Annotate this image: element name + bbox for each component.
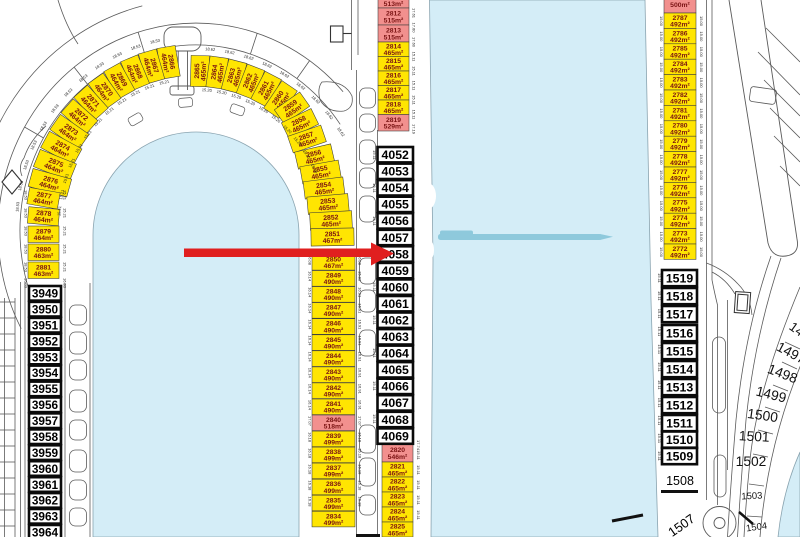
svg-text:3951: 3951 xyxy=(32,319,59,333)
svg-text:15.00: 15.00 xyxy=(659,47,664,58)
svg-text:2834499m²: 2834499m² xyxy=(324,513,344,527)
svg-text:4064: 4064 xyxy=(382,347,410,361)
svg-text:3956: 3956 xyxy=(32,398,59,412)
svg-text:15.00: 15.00 xyxy=(659,31,664,42)
svg-text:16.18: 16.18 xyxy=(308,432,313,443)
svg-text:2825465m²: 2825465m² xyxy=(388,524,408,537)
svg-text:16.18: 16.18 xyxy=(358,464,363,475)
svg-text:3961: 3961 xyxy=(32,478,59,492)
svg-text:2835499m²: 2835499m² xyxy=(324,497,344,511)
svg-text:2836499m²: 2836499m² xyxy=(324,481,344,495)
svg-text:15.00: 15.00 xyxy=(659,232,664,243)
svg-text:15.11: 15.11 xyxy=(412,110,417,120)
svg-text:4063: 4063 xyxy=(382,330,410,344)
svg-text:1512: 1512 xyxy=(666,398,694,412)
svg-text:15.00: 15.00 xyxy=(699,139,704,150)
svg-text:15.00: 15.00 xyxy=(659,170,664,181)
svg-text:2781492m²: 2781492m² xyxy=(670,107,690,121)
svg-text:500m²: 500m² xyxy=(670,2,690,9)
svg-text:17.19: 17.19 xyxy=(412,124,417,135)
svg-text:2841490m²: 2841490m² xyxy=(324,401,344,415)
svg-text:2773492m²: 2773492m² xyxy=(670,231,690,245)
svg-text:4060: 4060 xyxy=(382,280,410,294)
svg-text:1513: 1513 xyxy=(666,380,694,394)
svg-text:15.11: 15.11 xyxy=(412,95,417,105)
svg-text:16.14: 16.14 xyxy=(308,319,313,330)
svg-text:15.00: 15.00 xyxy=(659,139,664,150)
svg-text:2849490m²: 2849490m² xyxy=(324,273,344,287)
svg-text:15.21: 15.21 xyxy=(63,190,68,201)
svg-text:15.20: 15.20 xyxy=(202,87,213,93)
svg-text:15.00: 15.00 xyxy=(699,185,704,196)
svg-text:3957: 3957 xyxy=(32,414,59,428)
svg-text:2779492m²: 2779492m² xyxy=(670,138,690,152)
svg-text:15.00: 15.00 xyxy=(699,216,704,227)
svg-text:15.00: 15.00 xyxy=(699,232,704,243)
svg-text:1514: 1514 xyxy=(666,362,694,376)
svg-text:15.00: 15.00 xyxy=(699,62,704,73)
svg-text:15.00: 15.00 xyxy=(699,31,704,42)
svg-text:2774492m²: 2774492m² xyxy=(670,215,690,229)
svg-text:4054: 4054 xyxy=(382,181,410,195)
svg-text:3950: 3950 xyxy=(32,303,59,317)
svg-text:15.11: 15.11 xyxy=(372,414,377,424)
svg-text:16.14: 16.14 xyxy=(308,335,313,346)
svg-text:1501: 1501 xyxy=(739,428,770,445)
svg-text:1510: 1510 xyxy=(666,433,694,447)
svg-text:1509: 1509 xyxy=(666,449,694,463)
svg-text:2823465m²: 2823465m² xyxy=(388,494,408,508)
svg-text:15.00: 15.00 xyxy=(699,155,704,166)
svg-text:16.14: 16.14 xyxy=(308,303,313,314)
svg-text:2784492m²: 2784492m² xyxy=(670,61,690,75)
svg-text:4061: 4061 xyxy=(382,297,410,311)
svg-text:3954: 3954 xyxy=(32,366,59,380)
svg-text:15.11: 15.11 xyxy=(372,315,377,325)
svg-text:15.00: 15.00 xyxy=(659,108,664,119)
svg-text:15.00: 15.00 xyxy=(699,170,704,181)
svg-text:2776492m²: 2776492m² xyxy=(670,184,690,198)
svg-text:2785492m²: 2785492m² xyxy=(670,46,690,60)
svg-text:1515: 1515 xyxy=(666,344,694,358)
svg-text:15.11: 15.11 xyxy=(416,495,421,505)
svg-text:2820546m²: 2820546m² xyxy=(388,447,408,461)
svg-text:2824465m²: 2824465m² xyxy=(388,509,408,523)
svg-text:15.11: 15.11 xyxy=(372,216,377,226)
svg-text:1508: 1508 xyxy=(666,474,694,488)
svg-text:15.11: 15.11 xyxy=(657,451,662,461)
svg-text:18.53: 18.53 xyxy=(24,262,29,273)
svg-text:15.11: 15.11 xyxy=(412,81,417,91)
svg-text:16.18: 16.18 xyxy=(308,480,313,491)
svg-text:2879464m²: 2879464m² xyxy=(34,228,54,242)
svg-text:15.11: 15.11 xyxy=(657,433,662,443)
svg-text:2786492m²: 2786492m² xyxy=(670,30,690,44)
svg-text:2821465m²: 2821465m² xyxy=(388,464,408,478)
svg-text:15.11: 15.11 xyxy=(657,362,662,372)
svg-text:1516: 1516 xyxy=(666,326,694,340)
svg-text:18.62: 18.62 xyxy=(205,46,216,52)
svg-text:4067: 4067 xyxy=(382,396,410,410)
svg-text:2842490m²: 2842490m² xyxy=(324,385,344,399)
svg-text:16.14: 16.14 xyxy=(308,352,313,363)
svg-text:2850467m²: 2850467m² xyxy=(324,257,344,271)
svg-text:18.53: 18.53 xyxy=(24,190,29,201)
svg-text:16.18: 16.18 xyxy=(358,480,363,491)
svg-text:18.53: 18.53 xyxy=(24,244,29,255)
svg-text:2848490m²: 2848490m² xyxy=(324,289,344,303)
svg-text:2847490m²: 2847490m² xyxy=(324,305,344,319)
svg-text:2840518m²: 2840518m² xyxy=(324,417,344,431)
svg-text:1503: 1503 xyxy=(741,490,763,502)
svg-text:2838499m²: 2838499m² xyxy=(324,449,344,463)
svg-text:4056: 4056 xyxy=(382,214,410,228)
svg-text:3959: 3959 xyxy=(32,446,59,460)
svg-text:3958: 3958 xyxy=(32,430,59,444)
svg-text:3952: 3952 xyxy=(32,334,59,348)
svg-text:2818465m²: 2818465m² xyxy=(384,101,404,115)
svg-text:17.07: 17.07 xyxy=(308,416,313,427)
svg-text:4062: 4062 xyxy=(382,314,410,328)
svg-text:15.11: 15.11 xyxy=(416,480,421,490)
svg-text:15.21: 15.21 xyxy=(63,244,68,255)
svg-text:15.21: 15.21 xyxy=(63,208,68,219)
svg-text:2846490m²: 2846490m² xyxy=(324,321,344,335)
svg-text:2865465m²: 2865465m² xyxy=(194,60,208,81)
svg-text:15.11: 15.11 xyxy=(416,510,421,520)
svg-text:15.11: 15.11 xyxy=(372,282,377,292)
svg-text:16.91: 16.91 xyxy=(358,352,363,363)
svg-text:17.60: 17.60 xyxy=(412,37,417,48)
svg-text:2816465m²: 2816465m² xyxy=(384,72,404,86)
svg-text:1517: 1517 xyxy=(666,307,694,321)
svg-text:2843490m²: 2843490m² xyxy=(324,369,344,383)
svg-text:2822465m²: 2822465m² xyxy=(388,479,408,493)
svg-text:15.00: 15.00 xyxy=(699,108,704,119)
svg-text:3963: 3963 xyxy=(32,510,59,524)
svg-text:15.00: 15.00 xyxy=(699,93,704,104)
svg-text:16.91: 16.91 xyxy=(358,287,363,298)
svg-text:2844490m²: 2844490m² xyxy=(324,353,344,367)
svg-text:4057: 4057 xyxy=(382,231,410,245)
svg-text:16.91: 16.91 xyxy=(358,335,363,346)
svg-text:16.91: 16.91 xyxy=(358,303,363,314)
svg-text:15.11: 15.11 xyxy=(412,66,417,76)
svg-text:15.00: 15.00 xyxy=(659,62,664,73)
svg-text:2878464m²: 2878464m² xyxy=(33,210,54,225)
svg-text:16.91: 16.91 xyxy=(358,319,363,330)
svg-text:15.00: 15.00 xyxy=(699,247,704,258)
svg-text:15.00: 15.00 xyxy=(659,124,664,135)
svg-text:513m²: 513m² xyxy=(384,1,404,8)
svg-text:4052: 4052 xyxy=(382,148,410,162)
svg-text:16.18: 16.18 xyxy=(358,432,363,443)
svg-text:4068: 4068 xyxy=(382,413,410,427)
svg-text:15.11: 15.11 xyxy=(657,416,662,426)
svg-text:2783492m²: 2783492m² xyxy=(670,77,690,91)
svg-text:2837499m²: 2837499m² xyxy=(324,465,344,479)
svg-text:15.11: 15.11 xyxy=(657,398,662,408)
svg-text:15.00: 15.00 xyxy=(659,78,664,89)
svg-text:17.07: 17.07 xyxy=(358,416,363,427)
svg-text:18.53: 18.53 xyxy=(24,208,29,219)
svg-text:4059: 4059 xyxy=(382,264,410,278)
svg-text:16.14: 16.14 xyxy=(308,287,313,298)
svg-text:15.11: 15.11 xyxy=(416,450,421,460)
svg-text:16.14: 16.14 xyxy=(308,271,313,282)
svg-text:15.00: 15.00 xyxy=(699,201,704,212)
svg-text:16.14: 16.14 xyxy=(308,368,313,379)
svg-text:4066: 4066 xyxy=(382,380,410,394)
svg-text:2777492m²: 2777492m² xyxy=(670,169,690,183)
svg-text:17.74: 17.74 xyxy=(416,440,421,451)
svg-text:15.00: 15.00 xyxy=(659,93,664,104)
svg-text:16.14: 16.14 xyxy=(308,384,313,395)
svg-text:16.03: 16.03 xyxy=(24,278,29,289)
svg-text:16.18: 16.18 xyxy=(308,464,313,475)
svg-text:17.60: 17.60 xyxy=(412,22,417,33)
svg-text:17.61: 17.61 xyxy=(412,8,417,19)
svg-text:16.83: 16.83 xyxy=(63,278,68,289)
svg-text:3962: 3962 xyxy=(32,494,59,508)
svg-text:3955: 3955 xyxy=(32,382,59,396)
svg-text:15.00: 15.00 xyxy=(659,247,664,258)
svg-text:15.11: 15.11 xyxy=(416,465,421,475)
svg-text:3953: 3953 xyxy=(32,350,59,364)
svg-text:2782492m²: 2782492m² xyxy=(670,92,690,106)
svg-text:2819529m²: 2819529m² xyxy=(384,117,404,131)
svg-text:15.11: 15.11 xyxy=(412,52,417,62)
svg-text:15.11: 15.11 xyxy=(657,327,662,337)
svg-text:15.00: 15.00 xyxy=(659,185,664,196)
svg-text:15.00: 15.00 xyxy=(659,155,664,166)
svg-text:2772492m²: 2772492m² xyxy=(670,246,690,260)
svg-text:18.53: 18.53 xyxy=(24,226,29,237)
svg-text:2778492m²: 2778492m² xyxy=(670,154,690,168)
svg-text:15.00: 15.00 xyxy=(699,78,704,89)
svg-text:15.00: 15.00 xyxy=(699,124,704,135)
svg-text:2814465m²: 2814465m² xyxy=(384,43,404,57)
svg-text:1511: 1511 xyxy=(666,416,693,430)
svg-text:1519: 1519 xyxy=(666,271,694,285)
svg-text:2775492m²: 2775492m² xyxy=(670,200,690,214)
svg-text:2817465m²: 2817465m² xyxy=(384,87,404,101)
svg-text:3960: 3960 xyxy=(32,462,59,476)
svg-text:3964: 3964 xyxy=(32,526,59,537)
svg-text:16.14: 16.14 xyxy=(308,400,313,411)
svg-text:2839499m²: 2839499m² xyxy=(324,433,344,447)
svg-text:15.21: 15.21 xyxy=(63,262,68,273)
svg-text:15.00: 15.00 xyxy=(659,216,664,227)
svg-text:15.00: 15.00 xyxy=(699,47,704,58)
svg-text:15.00: 15.00 xyxy=(659,201,664,212)
svg-text:15.11: 15.11 xyxy=(657,309,662,319)
svg-text:16.91: 16.91 xyxy=(358,400,363,411)
svg-text:1502: 1502 xyxy=(736,454,767,469)
svg-text:2787492m²: 2787492m² xyxy=(670,15,690,29)
svg-text:4055: 4055 xyxy=(382,198,410,212)
svg-text:15.00: 15.00 xyxy=(659,16,664,27)
svg-text:2780492m²: 2780492m² xyxy=(670,123,690,137)
svg-text:3949: 3949 xyxy=(32,287,59,301)
svg-text:15.11: 15.11 xyxy=(657,291,662,301)
svg-text:2845490m²: 2845490m² xyxy=(324,337,344,351)
svg-text:15.21: 15.21 xyxy=(63,226,68,237)
svg-text:16.91: 16.91 xyxy=(358,368,363,379)
svg-text:15.11: 15.11 xyxy=(372,381,377,391)
svg-text:15.11: 15.11 xyxy=(372,348,377,358)
svg-text:16.18: 16.18 xyxy=(358,448,363,459)
svg-text:15.11: 15.11 xyxy=(657,344,662,354)
svg-text:2813515m²: 2813515m² xyxy=(384,28,404,42)
svg-text:15.11: 15.11 xyxy=(372,150,377,160)
svg-text:15.11: 15.11 xyxy=(372,183,377,193)
svg-text:15.11: 15.11 xyxy=(657,380,662,390)
svg-text:15.83: 15.83 xyxy=(358,271,363,282)
svg-text:16.18: 16.18 xyxy=(308,448,313,459)
svg-text:2881463m²: 2881463m² xyxy=(34,264,54,278)
svg-text:4065: 4065 xyxy=(382,363,410,377)
svg-text:4053: 4053 xyxy=(382,165,410,179)
svg-text:2812515m²: 2812515m² xyxy=(384,11,404,25)
svg-text:15.11: 15.11 xyxy=(657,273,662,283)
svg-text:16.18: 16.18 xyxy=(308,496,313,507)
svg-text:2880463m²: 2880463m² xyxy=(34,246,54,260)
svg-text:15.00: 15.00 xyxy=(699,16,704,27)
svg-text:2815465m²: 2815465m² xyxy=(384,58,404,72)
svg-text:16.91: 16.91 xyxy=(358,384,363,395)
svg-text:4069: 4069 xyxy=(382,429,410,443)
svg-text:1518: 1518 xyxy=(666,289,694,303)
svg-text:16.18: 16.18 xyxy=(358,496,363,507)
